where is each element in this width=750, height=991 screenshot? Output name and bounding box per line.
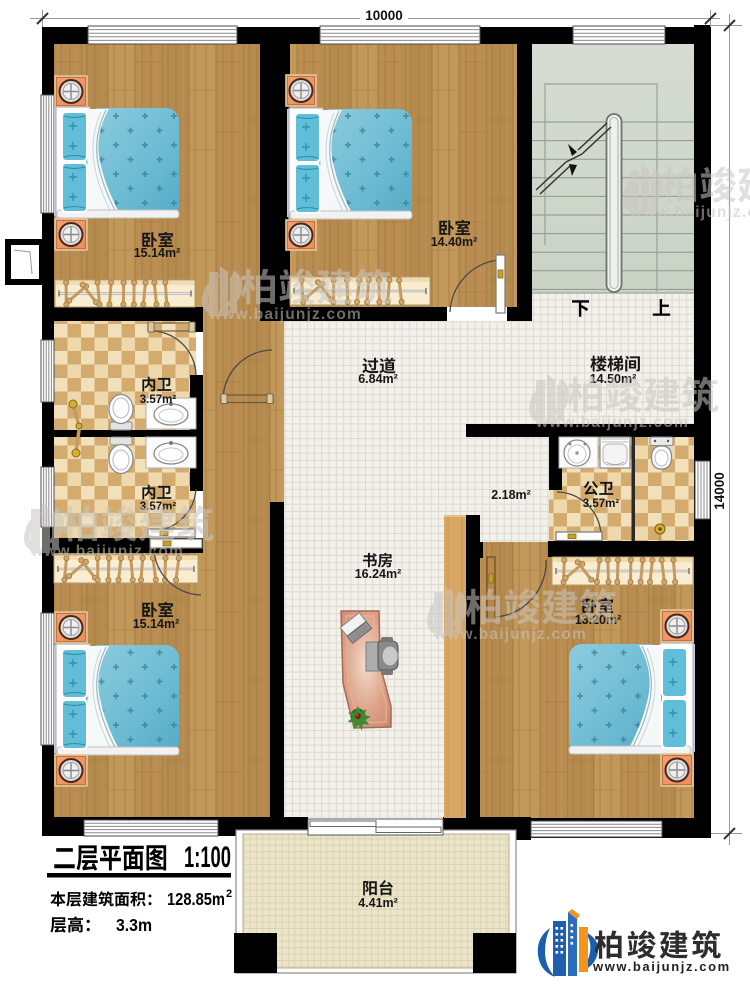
svg-text:6.84m²: 6.84m²: [358, 372, 398, 386]
svg-text:128.85m: 128.85m: [167, 889, 225, 909]
svg-text:2.18m²: 2.18m²: [491, 488, 531, 502]
svg-text:15.14m²: 15.14m²: [133, 617, 180, 631]
svg-text:10000: 10000: [365, 8, 403, 23]
svg-text:www.baijunjz.com: www.baijunjz.com: [592, 959, 731, 974]
svg-text:3.57m²: 3.57m²: [140, 394, 177, 406]
svg-text:4.41m²: 4.41m²: [358, 896, 398, 910]
svg-text:14.40m²: 14.40m²: [431, 235, 478, 249]
svg-text:2: 2: [226, 888, 232, 900]
svg-text:3.3m: 3.3m: [116, 915, 152, 935]
svg-text:3.57m²: 3.57m²: [583, 498, 620, 510]
svg-text:14000: 14000: [712, 472, 727, 510]
svg-text:16.24m²: 16.24m²: [355, 567, 402, 581]
svg-text:15.14m²: 15.14m²: [134, 246, 181, 260]
svg-text:1:100: 1:100: [184, 841, 231, 874]
